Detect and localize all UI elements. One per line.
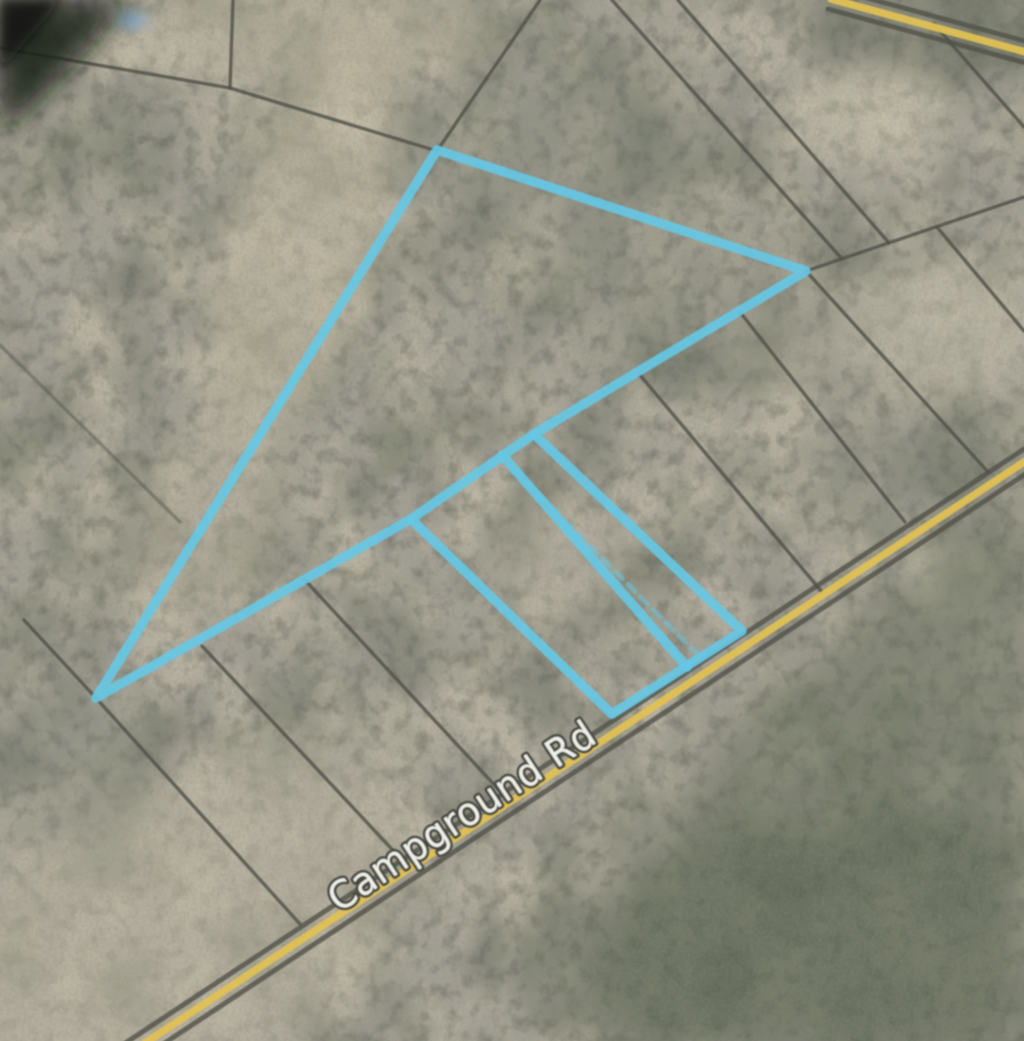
parcel-map-screenshot: Campground Rd — [0, 0, 1024, 1041]
aerial-parcel-map: Campground Rd — [0, 0, 1024, 1041]
photo-haze — [0, 0, 1024, 1041]
